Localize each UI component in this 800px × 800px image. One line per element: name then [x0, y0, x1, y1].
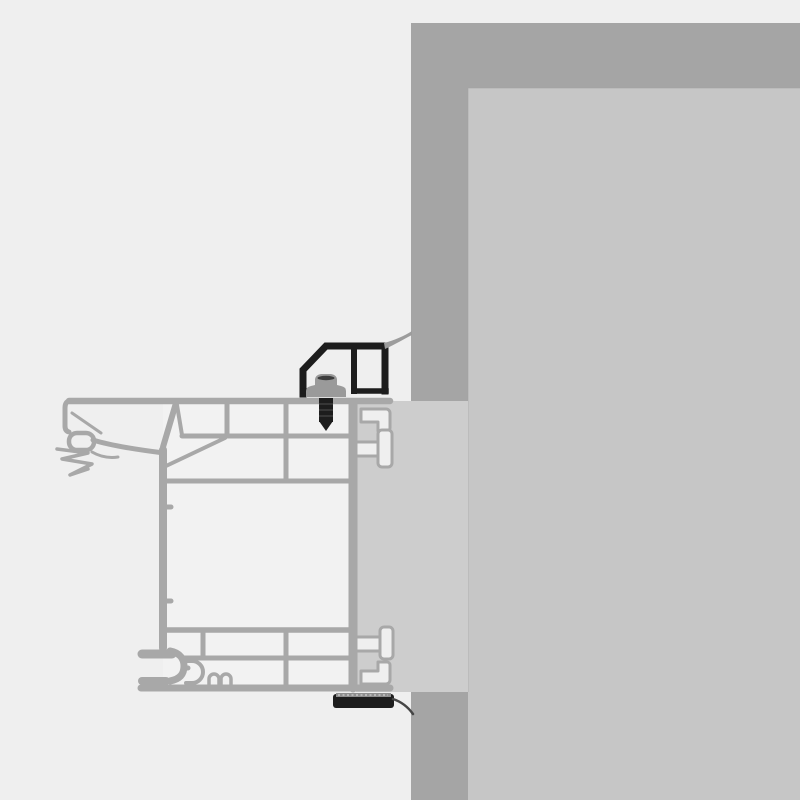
wall-jamb-upper [411, 23, 468, 405]
t-connector-bottom-cap [380, 627, 393, 659]
diagram-canvas [0, 0, 800, 800]
screw-slot [318, 376, 335, 380]
t-connector-bottom-stem [354, 637, 382, 651]
t-connector-top-cap [378, 430, 392, 467]
wall-top-band [411, 23, 800, 88]
profile-chamber-fill [163, 402, 353, 690]
wall-inner-fill [468, 88, 800, 800]
masonry-wall [411, 23, 800, 800]
wall-jamb-lower [411, 692, 468, 800]
cross-section-diagram [0, 0, 800, 800]
